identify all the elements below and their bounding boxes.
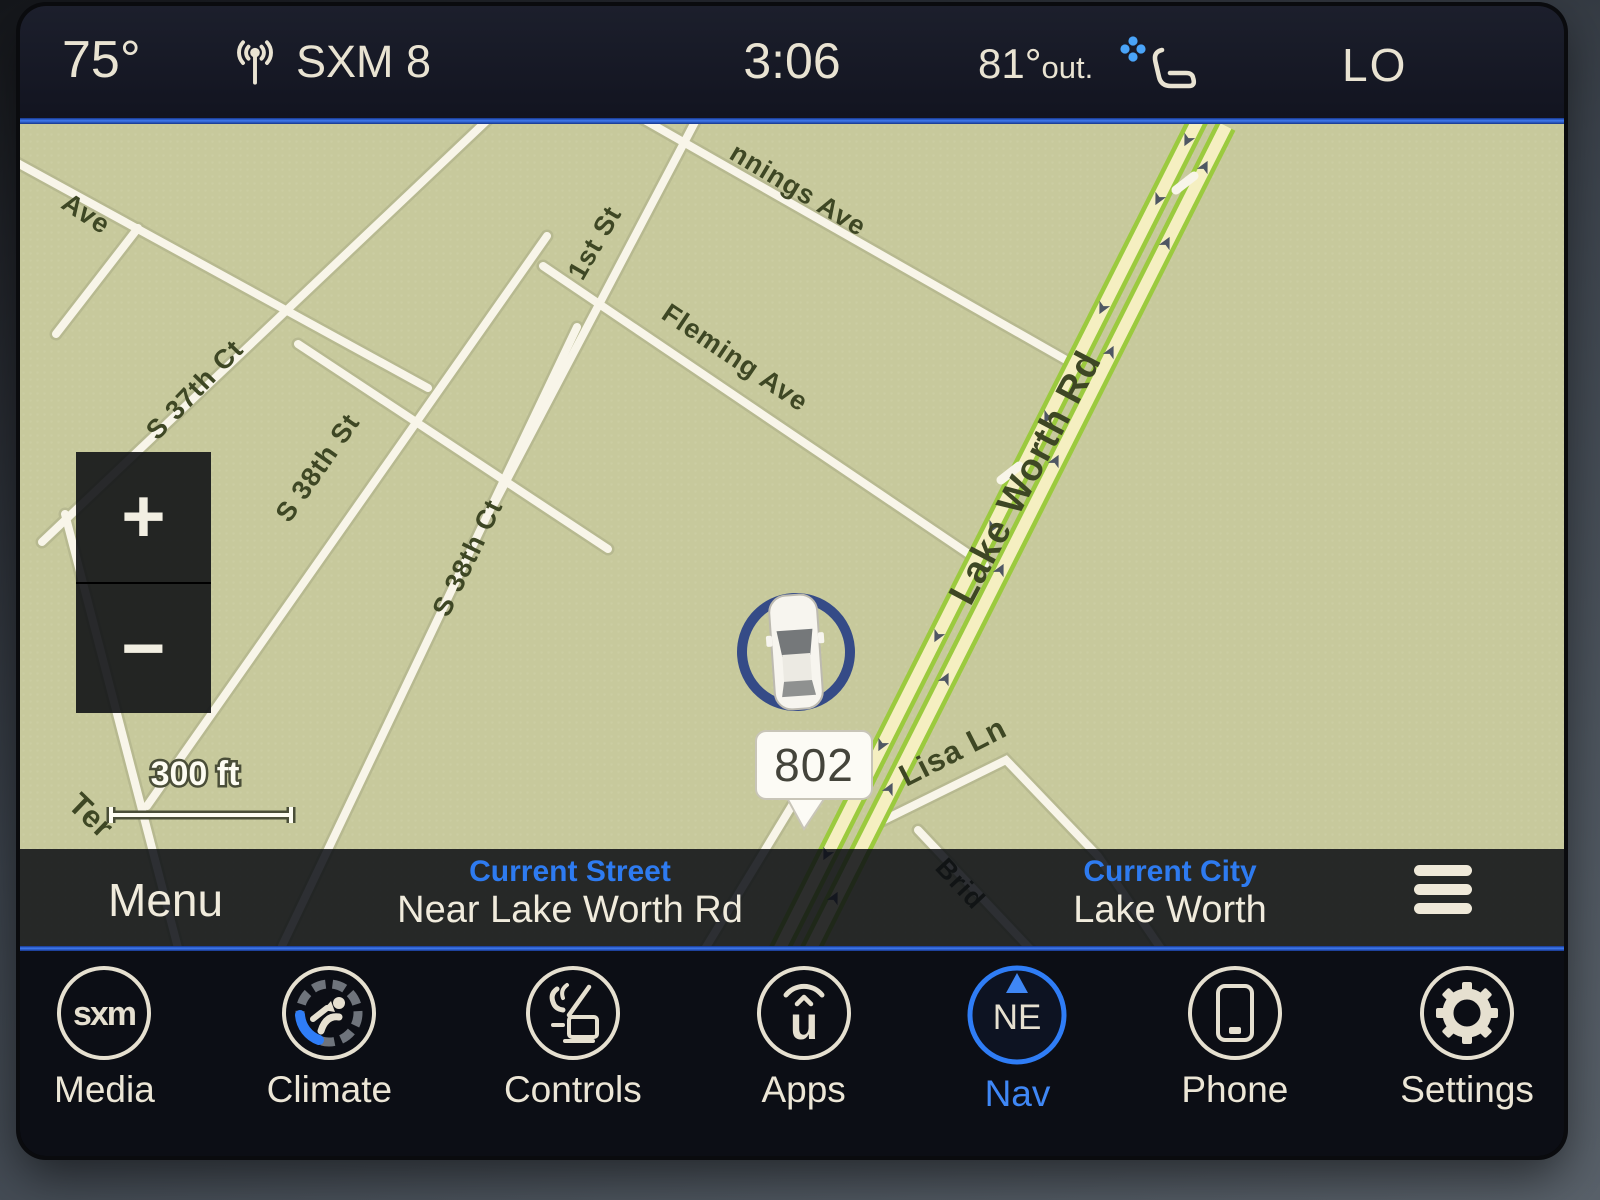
dock-label: Media: [54, 1069, 155, 1111]
apps-glyph: u: [790, 997, 818, 1049]
current-street-label: Current Street: [350, 855, 790, 889]
nav-compass-icon: NE: [965, 963, 1069, 1067]
clock: 3:06: [20, 32, 1564, 90]
dock-item-media[interactable]: sxm Media: [54, 963, 155, 1111]
dock-label: Phone: [1181, 1069, 1288, 1111]
uconnect-apps-icon: u: [754, 963, 854, 1063]
compass-heading: NE: [993, 998, 1042, 1037]
settings-gear-icon: [1417, 963, 1517, 1063]
vehicle-marker: [738, 591, 854, 712]
dock-item-apps[interactable]: u Apps: [754, 963, 854, 1111]
map-roads: 300 ft 802: [20, 124, 1564, 946]
dock-label: Climate: [267, 1069, 392, 1111]
status-bar: 75° SXM 8 3:06 81°out. LO: [20, 6, 1564, 118]
current-street-value: Near Lake Worth Rd: [350, 889, 790, 932]
dock-label: Nav: [985, 1073, 1051, 1115]
current-city-label: Current City: [950, 855, 1390, 889]
controls-seat-icon: [523, 963, 623, 1063]
menu-button[interactable]: Menu: [108, 873, 223, 927]
infotainment-screen: 75° SXM 8 3:06 81°out. LO: [20, 6, 1564, 1156]
phone-icon: [1185, 963, 1285, 1063]
dock-item-nav[interactable]: NE Nav: [965, 963, 1069, 1115]
climate-icon: [279, 963, 379, 1063]
dock-label: Settings: [1400, 1069, 1534, 1111]
seat-vent-fan-icon: [1118, 34, 1148, 64]
map-options-menu-icon[interactable]: [1414, 865, 1472, 914]
zoom-controls: + −: [76, 452, 211, 713]
route-shield-number: 802: [774, 739, 854, 791]
dock-label: Controls: [504, 1069, 642, 1111]
outside-temp-value: 81°: [978, 40, 1042, 87]
dock-item-settings[interactable]: Settings: [1400, 963, 1534, 1111]
fan-speed: LO: [1342, 38, 1407, 92]
dock-item-climate[interactable]: Climate: [267, 963, 392, 1111]
current-street-block: Current Street Near Lake Worth Rd: [350, 855, 790, 931]
zoom-in-button[interactable]: +: [76, 452, 211, 582]
dock-item-phone[interactable]: Phone: [1181, 963, 1288, 1111]
outside-temperature: 81°out.: [978, 40, 1093, 88]
nav-info-bar: Menu Current Street Near Lake Worth Rd C…: [20, 849, 1564, 946]
dock-label: Apps: [761, 1069, 845, 1111]
sxm-badge: sxm: [73, 995, 136, 1033]
sxm-media-icon: sxm: [54, 963, 154, 1063]
seat-icon: [1148, 46, 1198, 92]
scale-text: 300 ft: [151, 755, 240, 793]
dock-item-controls[interactable]: Controls: [504, 963, 642, 1111]
current-city-block: Current City Lake Worth: [950, 855, 1390, 931]
outside-temp-suffix: out.: [1042, 50, 1094, 85]
app-dock: sxm Media Climate: [20, 951, 1564, 1156]
map-canvas[interactable]: 300 ft 802 Ave nnings Ave: [20, 124, 1564, 946]
current-city-value: Lake Worth: [950, 889, 1390, 932]
zoom-out-button[interactable]: −: [76, 582, 211, 714]
